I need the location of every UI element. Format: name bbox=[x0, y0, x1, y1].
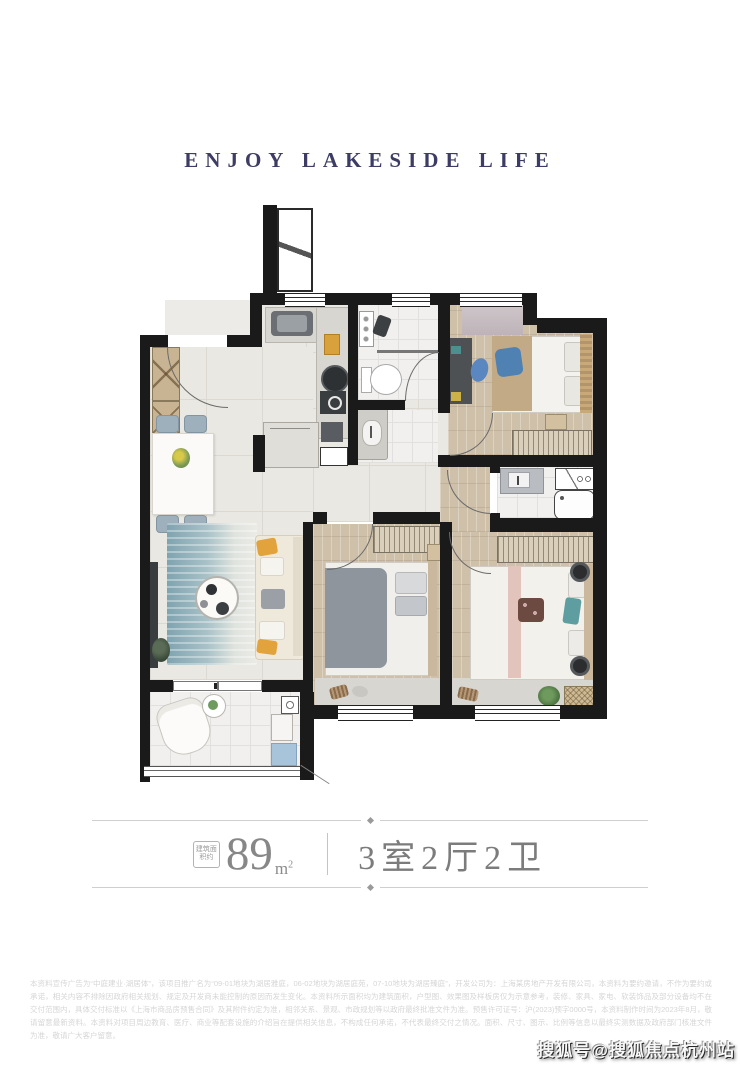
rule-line bbox=[380, 887, 649, 888]
cutting-board bbox=[324, 334, 340, 355]
rule-line bbox=[92, 887, 361, 888]
shower-glass-partition bbox=[377, 350, 438, 353]
washer-box bbox=[555, 468, 595, 490]
master-bed-floral-throw bbox=[518, 598, 544, 622]
second-bedroom-window bbox=[338, 705, 413, 721]
balcony-table-plant bbox=[208, 700, 218, 710]
spec-divider bbox=[327, 833, 328, 875]
balcony-blue-mat bbox=[271, 743, 297, 766]
diamond-icon bbox=[366, 884, 373, 891]
spec-band: 建筑面积约 89 m2 3室2厅2卫 bbox=[92, 818, 648, 890]
second-bed-pillow bbox=[395, 596, 427, 616]
flue-wall bbox=[263, 205, 277, 300]
balcony-railing bbox=[144, 766, 300, 777]
bedroom-nightstand bbox=[545, 414, 567, 430]
coffee-table-decor bbox=[216, 602, 229, 615]
master-bath-basin bbox=[508, 472, 530, 488]
sofa-pillow-gray bbox=[261, 589, 285, 609]
wall-step-vertical bbox=[523, 293, 537, 325]
spec-rule-bottom bbox=[92, 885, 648, 890]
wall-balcony-left bbox=[140, 680, 173, 692]
washbasin bbox=[362, 420, 382, 446]
bathtub-drain bbox=[560, 496, 564, 500]
wall-kitchen-stub bbox=[253, 435, 265, 472]
second-bed-headboard bbox=[428, 560, 437, 676]
sofa-backrest bbox=[293, 537, 303, 656]
desk-item-teal bbox=[451, 346, 461, 354]
bed-throw-blue bbox=[494, 346, 524, 377]
area-unit-sup: 2 bbox=[288, 859, 293, 870]
potted-plant bbox=[538, 686, 560, 706]
sliding-door-panel-right bbox=[218, 681, 262, 691]
toilet-bowl bbox=[370, 364, 402, 395]
table-centerpiece bbox=[172, 448, 190, 468]
floor-drain bbox=[281, 696, 299, 714]
sliding-door-panel-left bbox=[173, 681, 218, 691]
coffee-table-bowl bbox=[206, 584, 217, 595]
bedside-speaker bbox=[570, 656, 590, 676]
bedroom-wardrobe bbox=[512, 430, 592, 457]
rule-line bbox=[92, 820, 361, 821]
sofa-pillow-white bbox=[259, 621, 285, 640]
wall-bedroom2-top-a bbox=[313, 512, 327, 524]
dining-table bbox=[152, 433, 214, 515]
bathtub bbox=[554, 490, 595, 520]
bedside-speaker bbox=[570, 562, 590, 582]
area-unit-base: m bbox=[275, 859, 288, 878]
island-handle bbox=[270, 428, 310, 429]
page-title: ENJOY LAKESIDE LIFE bbox=[0, 148, 740, 173]
sofa-pillow-orange bbox=[256, 537, 278, 556]
shower-shelf bbox=[359, 311, 374, 347]
sofa-pillow-white bbox=[260, 557, 284, 576]
kitchen-window bbox=[285, 293, 325, 307]
area-unit: m2 bbox=[275, 859, 293, 879]
stove-burner bbox=[328, 396, 342, 410]
page: ENJOY LAKESIDE LIFE bbox=[0, 0, 740, 1067]
wall-entry-connector bbox=[250, 293, 262, 347]
coffee-table bbox=[195, 576, 239, 620]
spec-row: 建筑面积约 89 m2 3室2厅2卫 bbox=[92, 823, 648, 885]
bedroom-curtain-bench bbox=[462, 305, 523, 335]
faucet-icon bbox=[370, 426, 372, 438]
bed-headboard bbox=[580, 334, 592, 413]
wall-bedroom2-master bbox=[440, 522, 452, 717]
second-bed-pillow bbox=[395, 572, 427, 594]
wall-living-bedroom2 bbox=[303, 522, 313, 705]
floorplan bbox=[140, 200, 612, 788]
disclaimer-text: 本资料宣传广告为“中庭建业·湖居体”，该项目推广名为“09-01地块为湖居雅庭，… bbox=[30, 977, 712, 1042]
watermark: 搜狐号@搜狐焦点杭州站 bbox=[537, 1036, 735, 1061]
wall-under-bedroom bbox=[448, 455, 593, 467]
wall-kitchen-bath bbox=[348, 305, 358, 465]
sliding-door-handle bbox=[214, 683, 217, 689]
kitchen-bin bbox=[321, 422, 343, 442]
flue-shaft-symbol bbox=[277, 208, 313, 292]
wall-bedroom2-top-b bbox=[373, 512, 440, 524]
wall-bottom-c bbox=[560, 705, 607, 719]
entry-landing bbox=[165, 300, 262, 335]
wall-bath-bedroom bbox=[438, 305, 450, 413]
kitchen-appliance bbox=[320, 447, 348, 466]
wall-right bbox=[593, 318, 607, 717]
master-ottoman bbox=[564, 686, 594, 706]
master-bedroom-window bbox=[475, 705, 560, 721]
second-bed-duvet bbox=[325, 568, 387, 668]
layout-text: 3室2厅2卫 bbox=[358, 830, 547, 879]
area-value: 89 bbox=[226, 831, 273, 878]
wall-masterbath-jamb-top bbox=[490, 467, 500, 473]
rule-line bbox=[380, 820, 649, 821]
wall-left bbox=[140, 335, 150, 782]
dining-chair bbox=[184, 415, 207, 433]
bedroom-window bbox=[460, 293, 522, 307]
living-plant bbox=[152, 638, 170, 662]
balcony-sink bbox=[271, 714, 293, 741]
wall-masterbath-bottom bbox=[490, 518, 593, 532]
desk-item-yellow bbox=[451, 392, 461, 401]
sofa-pillow-orange bbox=[256, 639, 278, 656]
wall-bath-bottom bbox=[352, 400, 405, 410]
master-wardrobe bbox=[497, 536, 595, 563]
wok-pan bbox=[321, 365, 349, 393]
master-bed-runner bbox=[508, 566, 521, 678]
dining-chair bbox=[156, 415, 179, 433]
area-seal: 建筑面积约 bbox=[193, 841, 220, 868]
kitchen-sink-basin bbox=[277, 315, 307, 332]
coffee-table-cup bbox=[200, 600, 208, 608]
master-bath-faucet-icon bbox=[517, 476, 519, 485]
bathroom-window bbox=[392, 293, 430, 307]
